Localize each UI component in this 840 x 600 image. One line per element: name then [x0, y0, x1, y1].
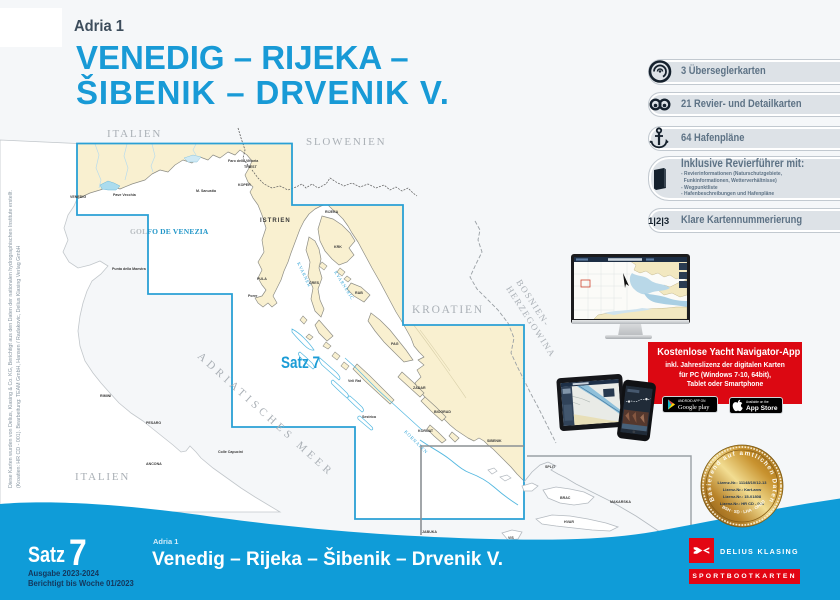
- svg-text:KORNAT: KORNAT: [418, 429, 434, 433]
- svg-text:TRIEST: TRIEST: [244, 165, 258, 169]
- svg-text:RAB: RAB: [355, 291, 363, 295]
- svg-text:MAKARSKA: MAKARSKA: [610, 500, 631, 504]
- svg-text:Faro della Vittoria: Faro della Vittoria: [228, 159, 259, 163]
- svg-text:JABUKA: JABUKA: [422, 530, 437, 534]
- svg-text:1|2|3: 1|2|3: [648, 216, 669, 227]
- svg-text:Lizenz-Nr.: 15-01808: Lizenz-Nr.: 15-01808: [723, 494, 762, 499]
- svg-text:Pave Vecchia: Pave Vecchia: [113, 193, 137, 197]
- svg-text:GOLFO DE VENEZIA: GOLFO DE VENEZIA: [130, 227, 209, 236]
- svg-text:Lizenz-Nr.: 11148/10/12-13: Lizenz-Nr.: 11148/10/12-13: [718, 480, 768, 485]
- svg-text:Colle Capucini: Colle Capucini: [218, 450, 243, 454]
- svg-text:Satz 7: Satz 7: [281, 353, 320, 372]
- svg-text:KRK: KRK: [334, 245, 342, 249]
- svg-text:ISTRIEN: ISTRIEN: [260, 218, 291, 224]
- svg-text:SPLIT: SPLIT: [545, 465, 556, 469]
- svg-text:Sestrica: Sestrica: [362, 415, 377, 419]
- svg-text:SLOWENIEN: SLOWENIEN: [306, 136, 386, 148]
- svg-text:HVAR: HVAR: [564, 520, 574, 524]
- svg-text:KOPER: KOPER: [238, 183, 251, 187]
- svg-text:Lizenz-Nr.: Kart-anw: Lizenz-Nr.: Kart-anw: [723, 487, 762, 492]
- svg-text:Punta della Maestra: Punta della Maestra: [112, 267, 147, 271]
- svg-text:KROATIEN: KROATIEN: [412, 304, 484, 316]
- svg-text:Google play: Google play: [678, 404, 710, 411]
- svg-text:ZADAR: ZADAR: [413, 386, 426, 390]
- svg-text:M. Sanustia: M. Sanustia: [196, 189, 217, 193]
- svg-text:Porer: Porer: [248, 294, 258, 298]
- svg-text:PESARO: PESARO: [146, 421, 161, 425]
- svg-text:ANCONA: ANCONA: [146, 462, 162, 466]
- svg-text:App Store: App Store: [746, 405, 778, 412]
- svg-text:BRAC: BRAC: [560, 496, 571, 500]
- svg-text:RIJEKA: RIJEKA: [325, 210, 339, 214]
- svg-text:VENEDIG: VENEDIG: [70, 195, 86, 199]
- svg-text:CRES: CRES: [309, 281, 320, 285]
- svg-text:ITALIEN: ITALIEN: [107, 128, 162, 140]
- svg-text:RIMINI: RIMINI: [100, 394, 111, 398]
- svg-text:Veli Rat: Veli Rat: [348, 379, 362, 383]
- svg-text:PAG: PAG: [391, 342, 399, 346]
- svg-text:BIOGRAD: BIOGRAD: [434, 410, 451, 414]
- svg-text:SIBENIK: SIBENIK: [487, 439, 502, 443]
- svg-text:Available on the: Available on the: [746, 400, 769, 404]
- svg-text:PULA: PULA: [257, 277, 267, 281]
- svg-text:ITALIEN: ITALIEN: [75, 471, 130, 483]
- svg-text:ANDROID APP ON: ANDROID APP ON: [678, 399, 706, 403]
